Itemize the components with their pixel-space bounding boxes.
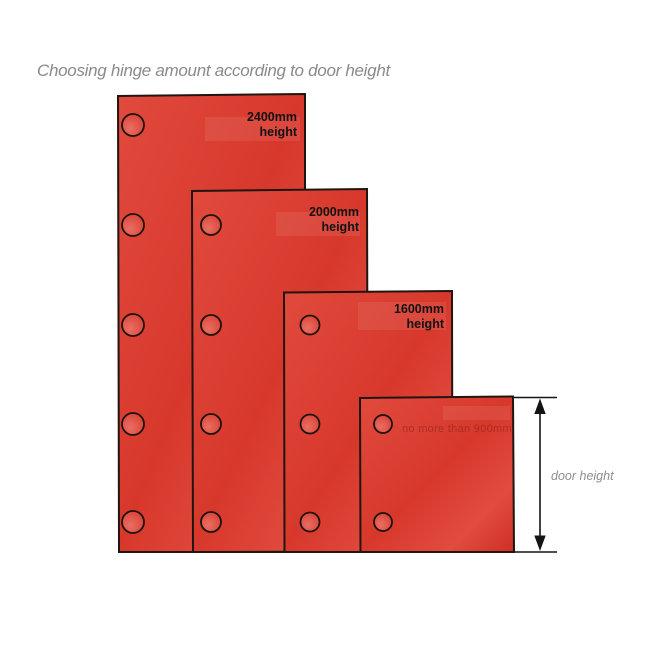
- door-900mm-note: no more than 900mm: [402, 423, 512, 435]
- arrow-down-icon: [534, 536, 545, 552]
- door-900mm: no more than 900mm: [360, 397, 514, 553]
- hinge-icon: [122, 314, 144, 336]
- door-2000mm-label-suffix: height: [322, 220, 360, 234]
- door-1600mm-label-suffix: height: [407, 317, 445, 331]
- hinge-diagram: Choosing hinge amount according to door …: [0, 0, 650, 650]
- door-height-dimension: door height: [512, 398, 614, 553]
- door-2400mm-label: 2400mm: [247, 110, 297, 124]
- hinge-icon: [201, 414, 221, 434]
- door-900mm-watermark-patch: [443, 406, 510, 420]
- hinge-icon: [201, 315, 221, 335]
- door-2000mm-label: 2000mm: [309, 205, 359, 219]
- hinge-icon: [122, 511, 144, 533]
- door-2400mm-label-suffix: height: [260, 125, 298, 139]
- dimension-label: door height: [551, 469, 614, 483]
- hinge-icon: [374, 415, 392, 433]
- hinge-icon: [374, 513, 392, 531]
- hinge-icon: [301, 513, 320, 532]
- hinge-icon: [122, 214, 144, 236]
- arrow-up-icon: [534, 399, 545, 415]
- hinge-icon: [201, 512, 221, 532]
- page-title: Choosing hinge amount according to door …: [37, 61, 391, 80]
- hinge-icon: [122, 413, 144, 435]
- hinge-icon: [301, 316, 320, 335]
- diagram-canvas: Choosing hinge amount according to door …: [0, 0, 650, 650]
- hinge-icon: [201, 215, 221, 235]
- hinge-icon: [122, 114, 144, 136]
- hinge-icon: [301, 415, 320, 434]
- door-1600mm-label: 1600mm: [394, 302, 444, 316]
